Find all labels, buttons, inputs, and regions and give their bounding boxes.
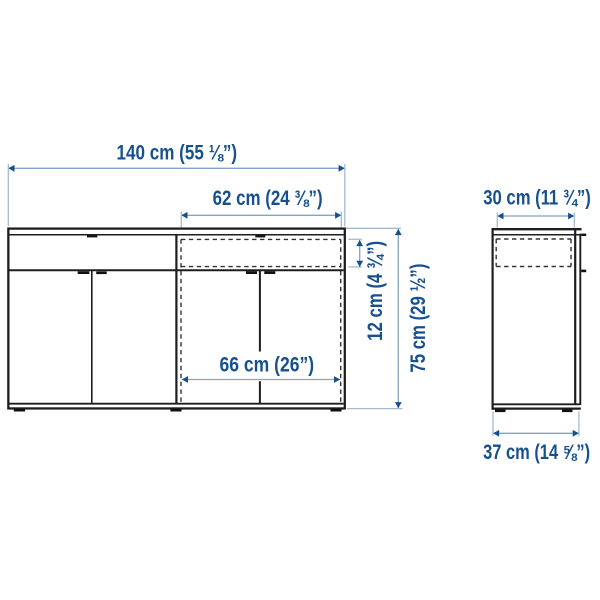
svg-text:37 cm (14 ⅝”): 37 cm (14 ⅝”) xyxy=(483,440,590,464)
svg-text:30 cm (11 ¾”): 30 cm (11 ¾”) xyxy=(483,185,591,209)
svg-text:75 cm (29 ½”): 75 cm (29 ½”) xyxy=(406,264,430,373)
svg-text:140 cm (55 ⅛”): 140 cm (55 ⅛”) xyxy=(117,140,238,164)
svg-text:62 cm (24 ⅜”): 62 cm (24 ⅜”) xyxy=(213,186,323,210)
svg-text:12 cm (4 ¾”): 12 cm (4 ¾”) xyxy=(363,241,387,341)
svg-text:66 cm (26”): 66 cm (26”) xyxy=(220,352,315,376)
